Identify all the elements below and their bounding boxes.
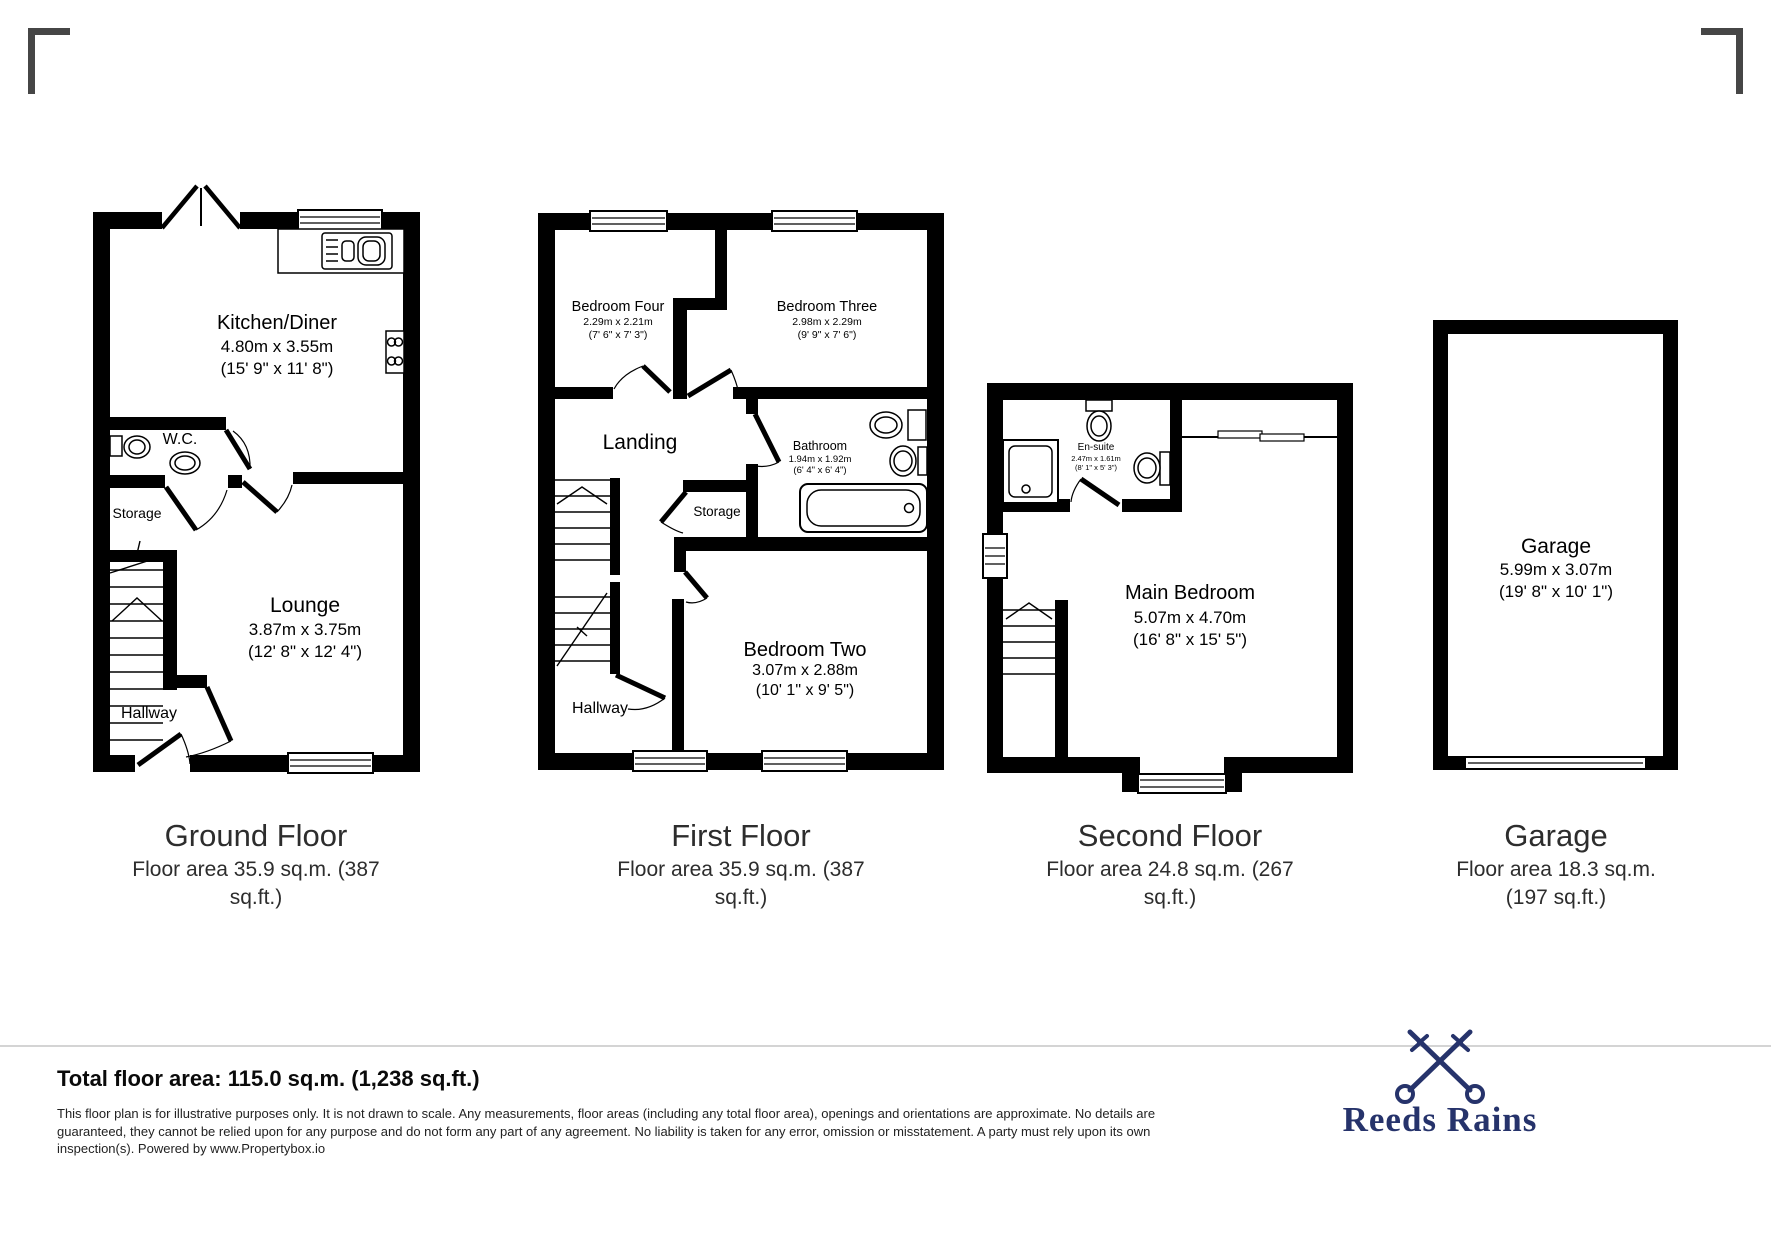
room-dims-metric: 3.07m x 2.88m [752, 663, 858, 680]
floor-area-first-line1: Floor area 35.9 sq.m. (387 [617, 858, 864, 882]
bathtub-icon [800, 484, 927, 532]
room-dims-imperial: (9' 9" x 7' 6") [798, 330, 857, 341]
floor-area-second-line2: sq.ft.) [1144, 886, 1197, 910]
floor-area-first-line2: sq.ft.) [715, 886, 768, 910]
room-dims-metric: 1.94m x 1.92m [789, 455, 852, 465]
logo-wordmark: Reeds Rains [1343, 1100, 1538, 1140]
room-dims-metric: 4.80m x 3.55m [221, 338, 333, 356]
room-label-kitchen-diner: Kitchen/Diner [217, 313, 337, 334]
room-dims-imperial: (10' 1" x 9' 5") [756, 683, 854, 700]
crop-mark-top-right [1701, 28, 1743, 94]
room-dims-imperial: (12' 8" x 12' 4") [248, 643, 362, 661]
first-floor-plan [538, 211, 944, 771]
sink-icon [1134, 452, 1170, 485]
door-icon [1071, 479, 1119, 505]
kitchen-sink-icon [322, 233, 392, 269]
room-dims-metric: 2.98m x 2.29m [792, 317, 861, 328]
floor-area-second-line1: Floor area 24.8 sq.m. (267 [1046, 858, 1293, 882]
room-label-bathroom: Bathroom [793, 440, 847, 453]
sink-icon [890, 446, 927, 476]
room-label-bedroom-three: Bedroom Three [777, 300, 877, 315]
window [288, 210, 382, 773]
toilet-icon [1086, 400, 1112, 441]
room-dims-metric: 5.07m x 4.70m [1134, 609, 1246, 627]
room-label-ensuite: En-suite [1078, 443, 1115, 454]
floor-title-garage: Garage [1504, 818, 1607, 854]
total-floor-area: Total floor area: 115.0 sq.m. (1,238 sq.… [57, 1066, 480, 1092]
room-label-bedroom-four: Bedroom Four [572, 300, 665, 315]
toilet-icon [110, 436, 150, 458]
room-dims-imperial: (19' 8" x 10' 1") [1499, 583, 1613, 601]
disclaimer-text: This floor plan is for illustrative purp… [57, 1105, 1217, 1158]
window [983, 534, 1226, 793]
room-label-storage: Storage [112, 506, 161, 521]
hob-icon [386, 331, 404, 373]
room-label-wc: W.C. [163, 432, 198, 449]
french-doors-icon [162, 186, 240, 228]
room-dims-metric: 2.47m x 1.61m [1071, 455, 1121, 463]
stairs-icon [555, 480, 610, 666]
room-label-storage: Storage [693, 505, 740, 519]
room-label-main-bedroom: Main Bedroom [1125, 583, 1255, 604]
room-dims-imperial: (8' 1" x 5' 3") [1075, 464, 1117, 472]
floor-area-ground-line1: Floor area 35.9 sq.m. (387 [132, 858, 379, 882]
floor-title-first: First Floor [671, 818, 811, 854]
crop-mark-top-left [28, 28, 70, 94]
garage-door-icon [1465, 757, 1646, 769]
room-dims-metric: 2.29m x 2.21m [583, 317, 652, 328]
floor-title-ground: Ground Floor [165, 818, 348, 854]
sink-icon [170, 452, 200, 474]
shower-icon [1003, 440, 1058, 503]
room-label-bedroom-two: Bedroom Two [743, 640, 866, 661]
room-dims-metric: 5.99m x 3.07m [1500, 561, 1612, 579]
room-label-hallway: Hallway [572, 701, 628, 718]
crossed-keys-icon [1397, 1032, 1483, 1102]
floor-area-garage-line2: (197 sq.ft.) [1506, 886, 1606, 910]
room-dims-imperial: (7' 6" x 7' 3") [589, 330, 648, 341]
room-dims-imperial: (6' 4" x 6' 4") [793, 466, 846, 476]
stairs-icon [1003, 603, 1055, 674]
floor-title-second: Second Floor [1078, 818, 1262, 854]
ground-floor-plan [93, 186, 420, 773]
floor-area-garage-line1: Floor area 18.3 sq.m. [1456, 858, 1656, 882]
room-label-landing: Landing [603, 432, 678, 454]
floor-area-ground-line2: sq.ft.) [230, 886, 283, 910]
room-label-hallway: Hallway [121, 706, 177, 723]
room-dims-imperial: (15' 9" x 11' 8") [221, 360, 334, 378]
room-dims-metric: 3.87m x 3.75m [249, 621, 361, 639]
room-dims-imperial: (16' 8" x 15' 5") [1133, 631, 1247, 649]
room-label-garage: Garage [1521, 536, 1591, 558]
wardrobe-icon [1182, 431, 1337, 441]
room-label-lounge: Lounge [270, 595, 340, 617]
floorplan-page: Kitchen/Diner 4.80m x 3.55m (15' 9" x 11… [0, 0, 1771, 1239]
toilet-icon [870, 410, 926, 440]
